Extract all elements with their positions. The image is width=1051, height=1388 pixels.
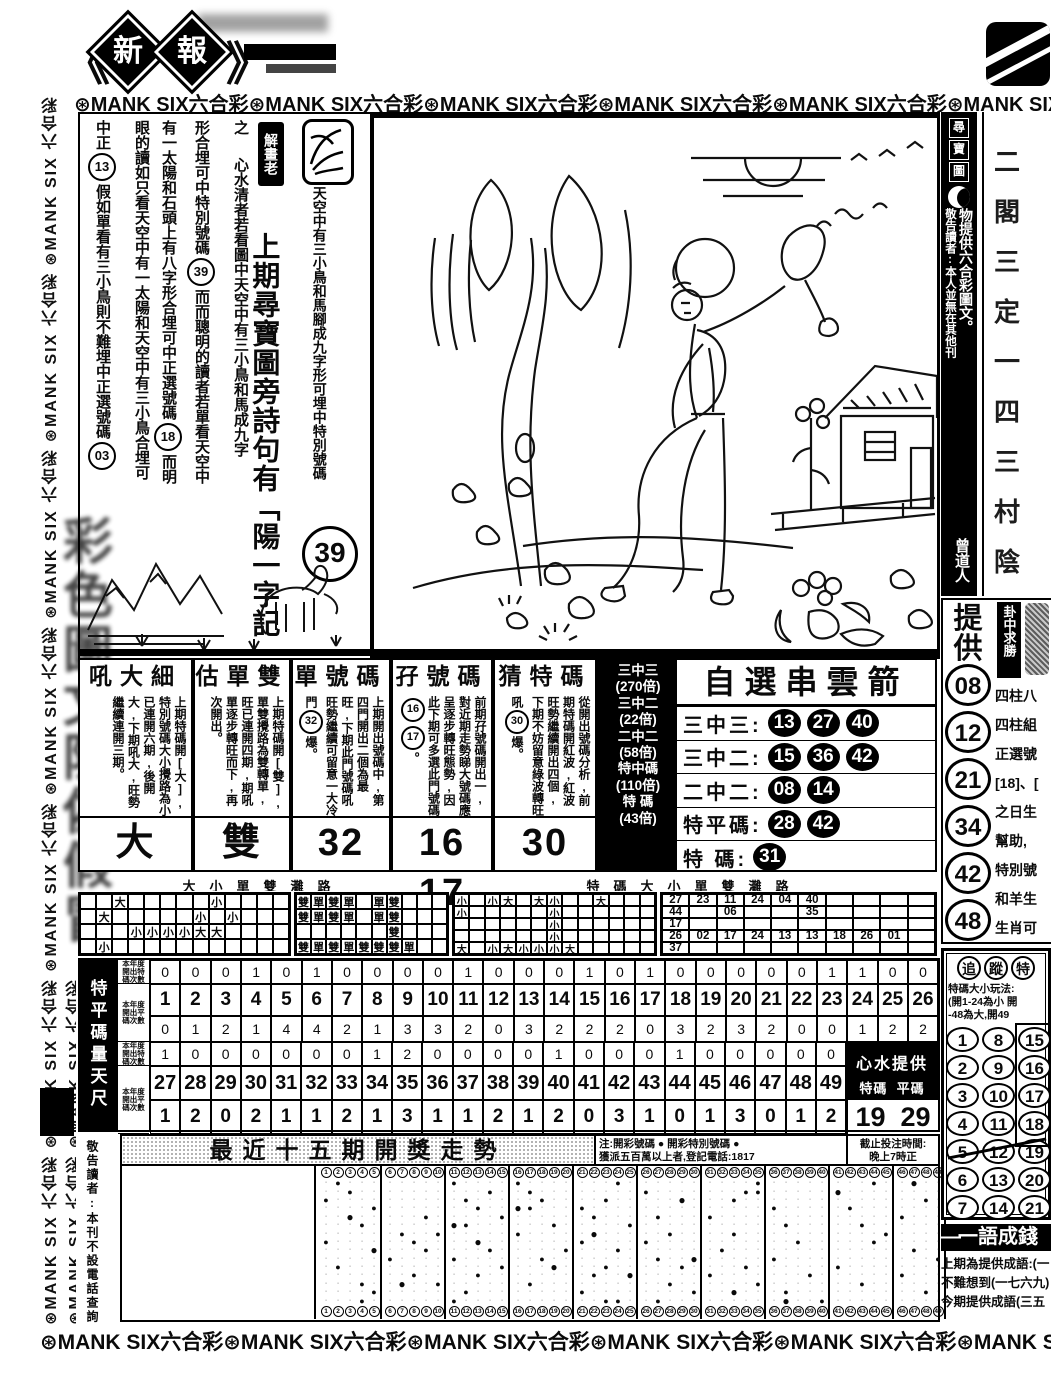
empty-dot: ·	[389, 1281, 391, 1287]
masthead-bracket-right: 》	[226, 28, 272, 94]
empty-dot: ·	[325, 1289, 327, 1295]
empty-dot: ·	[501, 1281, 503, 1287]
column-number: 28	[665, 1167, 676, 1178]
special-number-dot: ●	[370, 1247, 377, 1253]
empty-dot: ·	[413, 1189, 415, 1195]
number-cell: 25	[878, 984, 908, 1016]
road-cell	[257, 939, 273, 954]
empty-dot: ·	[425, 1222, 427, 1228]
drawn-number-dot: ●	[399, 1231, 404, 1237]
odds-line: (22倍)	[599, 712, 677, 728]
empty-dot: ·	[489, 1256, 491, 1262]
empty-dot: ·	[501, 1298, 503, 1304]
empty-dot: ·	[349, 1272, 351, 1278]
ruler-side-label: 特平碼量天尺	[78, 958, 116, 1132]
chase-special-box: 追蹤特 特碼大小玩法:(開1-24為小 開-48為大,開49 181529163…	[941, 948, 1051, 1220]
empty-dot: ·	[325, 1272, 327, 1278]
empty-dot: ·	[453, 1264, 455, 1270]
panel-result: 32	[293, 816, 389, 870]
drawn-number-dot: ●	[411, 1272, 416, 1278]
road-cell: 小	[454, 894, 469, 906]
empty-dot: ·	[785, 1239, 787, 1245]
empty-dot: ·	[937, 1222, 939, 1228]
empty-dot: ·	[821, 1214, 823, 1220]
road-cell: 單	[341, 939, 356, 954]
road-number-cell	[744, 918, 771, 930]
empty-dot: ·	[477, 1256, 479, 1262]
empty-dot: ·	[337, 1239, 339, 1245]
empty-dot: ·	[489, 1231, 491, 1237]
empty-dot: ·	[645, 1247, 647, 1253]
empty-dot: ·	[757, 1222, 759, 1228]
empty-dot: ·	[373, 1189, 375, 1195]
empty-dot: ·	[657, 1205, 659, 1211]
publisher-strip: 尋寶圖 物提供六合彩圖文。 敬告讀者:本人並無在其他刊 曾道人	[941, 112, 977, 596]
number-cell: 36	[422, 1066, 452, 1100]
empty-dot: ·	[389, 1214, 391, 1220]
empty-dot: ·	[849, 1214, 851, 1220]
empty-dot: ·	[745, 1247, 747, 1253]
empty-dot: ·	[437, 1189, 439, 1195]
empty-dot: ·	[605, 1180, 607, 1186]
panel-odd-even: 估單雙 上期特碼開[雙],單雙攪路為雙轉單,旺已連開四期,期吼單逐步轉旺而下,再…	[193, 658, 291, 872]
road-number-cell: 04	[771, 894, 798, 906]
road-number-cell: 24	[744, 930, 771, 942]
empty-dot: ·	[837, 1256, 839, 1262]
column-number: 34	[741, 1306, 752, 1317]
empty-dot: ·	[797, 1272, 799, 1278]
empty-dot: ·	[849, 1189, 851, 1195]
special-count-cell: 1	[665, 1042, 695, 1066]
number-cell: 38	[483, 1066, 513, 1100]
empty-dot: ·	[617, 1214, 619, 1220]
picked-number: 27	[807, 709, 840, 737]
circled-number: 03	[88, 442, 116, 470]
drawn-number-dot: ●	[435, 1231, 440, 1237]
road-cell: 小	[225, 909, 241, 924]
road-cell	[209, 939, 225, 954]
number-cell: 1	[150, 984, 180, 1016]
empty-dot: ·	[785, 1264, 787, 1270]
empty-dot: ·	[837, 1298, 839, 1304]
empty-dot: ·	[325, 1247, 327, 1253]
empty-dot: ·	[821, 1289, 823, 1295]
empty-dot: ·	[517, 1289, 519, 1295]
empty-dot: ·	[489, 1239, 491, 1245]
empty-dot: ·	[413, 1214, 415, 1220]
empty-dot: ·	[361, 1239, 363, 1245]
empty-dot: ·	[721, 1289, 723, 1295]
empty-dot: ·	[413, 1256, 415, 1262]
tip-box: 心水提供 特碼 平碼	[846, 1042, 938, 1100]
empty-dot: ·	[709, 1205, 711, 1211]
empty-dot: ·	[709, 1231, 711, 1237]
empty-dot: ·	[349, 1298, 351, 1304]
road-cell: 單	[311, 939, 326, 954]
special-count-cell: 1	[847, 960, 877, 984]
column-number: 21	[577, 1306, 588, 1317]
empty-dot: ·	[593, 1281, 595, 1287]
empty-dot: ·	[861, 1298, 863, 1304]
road-cell: 雙	[387, 909, 402, 924]
drawn-number-dot: ●	[463, 1289, 468, 1295]
empty-dot: ·	[361, 1189, 363, 1195]
road-cell	[531, 930, 546, 942]
empty-dot: ·	[693, 1239, 695, 1245]
road-cell	[593, 906, 608, 918]
empty-dot: ·	[565, 1231, 567, 1237]
empty-dot: ·	[617, 1264, 619, 1270]
column-number: 10	[433, 1306, 444, 1317]
empty-dot: ·	[593, 1180, 595, 1186]
ping-count-cell: 1	[422, 1100, 452, 1134]
empty-dot: ·	[645, 1231, 647, 1237]
empty-dot: ·	[901, 1205, 903, 1211]
ping-count-cell: 2	[180, 1100, 210, 1134]
empty-dot: ·	[809, 1239, 811, 1245]
empty-dot: ·	[361, 1289, 363, 1295]
empty-dot: ·	[565, 1289, 567, 1295]
road-cell: 雙	[372, 939, 387, 954]
column-number: 23	[601, 1306, 612, 1317]
empty-dot: ·	[937, 1180, 939, 1186]
empty-dot: ·	[773, 1231, 775, 1237]
circled-number: 17	[401, 726, 425, 750]
empty-dot: ·	[437, 1247, 439, 1253]
ping-count-cell: 2	[453, 1016, 483, 1042]
bottom-banner: ⊛MANK SIX六合彩⊛MANK SIX六合彩⊛MANK SIX六合彩⊛MAN…	[40, 1326, 1051, 1354]
road-cell	[241, 894, 257, 909]
drawn-number-dot: ●	[795, 1239, 800, 1245]
road-number-cell	[771, 918, 798, 930]
drawn-number-dot: ●	[371, 1289, 376, 1295]
panel-title: 估單雙	[195, 660, 289, 692]
empty-dot: ·	[413, 1298, 415, 1304]
road-cell	[96, 894, 112, 909]
empty-dot: ·	[797, 1180, 799, 1186]
column-number: 22	[589, 1306, 600, 1317]
empty-dot: ·	[489, 1222, 491, 1228]
empty-dot: ·	[361, 1205, 363, 1211]
empty-dot: ·	[721, 1197, 723, 1203]
road-cell	[609, 906, 624, 918]
empty-dot: ·	[645, 1298, 647, 1304]
road-cell	[80, 939, 96, 954]
column-number: 20	[561, 1167, 572, 1178]
road-cell	[624, 918, 639, 930]
empty-dot: ·	[657, 1197, 659, 1203]
edge-char: 村	[994, 492, 1020, 529]
seal-blob-icon	[1025, 603, 1049, 675]
drawn-number-dot: ●	[603, 1197, 608, 1203]
empty-dot: ·	[553, 1272, 555, 1278]
drawn-number-dot: ●	[899, 1272, 904, 1278]
empty-dot: ·	[593, 1239, 595, 1245]
road-number-cell	[744, 906, 771, 918]
empty-dot: ·	[645, 1197, 647, 1203]
empty-dot: ·	[541, 1239, 543, 1245]
road-cell: 雙	[387, 894, 402, 909]
drawn-number-dot: ●	[451, 1298, 456, 1304]
trend-blank-panel	[122, 1166, 316, 1319]
road-cell: 單	[341, 909, 356, 924]
column-number: 32	[717, 1167, 728, 1178]
odds-line: 二中二	[599, 729, 677, 745]
circled-number: 39	[187, 258, 215, 286]
panel-body: 上期特碼開[大],特別號碼大小攪路為小已連開六期,後開大,下期吼大,旺勢繼續連開…	[84, 696, 187, 816]
special-count-cell: 0	[787, 960, 817, 984]
column-number: 3	[345, 1167, 356, 1178]
empty-dot: ·	[565, 1239, 567, 1245]
chase-number: 20	[1018, 1167, 1051, 1192]
empty-dot: ·	[581, 1222, 583, 1228]
road-number-cell	[717, 942, 744, 954]
empty-dot: ·	[785, 1189, 787, 1195]
empty-dot: ·	[361, 1272, 363, 1278]
drawn-number-dot: ●	[691, 1289, 696, 1295]
road-cell	[562, 906, 577, 918]
empty-dot: ·	[925, 1298, 927, 1304]
odd-even-road-grid: 雙單雙單單雙雙單雙單單雙雙雙單雙單雙雙雙單	[294, 892, 449, 956]
empty-dot: ·	[757, 1205, 759, 1211]
self-pick-row: 三中二:153642	[677, 741, 935, 775]
ping-count-cell: 2	[878, 1016, 908, 1042]
empty-dot: ·	[501, 1180, 503, 1186]
empty-dot: ·	[821, 1272, 823, 1278]
empty-dot: ·	[821, 1231, 823, 1237]
road-cell	[341, 924, 356, 939]
empty-dot: ·	[453, 1189, 455, 1195]
empty-dot: ·	[873, 1214, 875, 1220]
road-cell: 雙	[387, 924, 402, 939]
publisher-line2: 敬告讀者:本人並無在其他刊	[942, 208, 958, 568]
empty-dot: ·	[885, 1298, 887, 1304]
empty-dot: ·	[837, 1239, 839, 1245]
empty-dot: ·	[465, 1298, 467, 1304]
empty-dot: ·	[477, 1180, 479, 1186]
special-count-cell: 0	[726, 960, 756, 984]
drawn-number-dot: ●	[487, 1189, 492, 1195]
edge-char: 四	[994, 392, 1020, 429]
road-number-cell: 17	[662, 918, 689, 930]
empty-dot: ·	[681, 1281, 683, 1287]
empty-dot: ·	[693, 1231, 695, 1237]
column-number: 37	[781, 1167, 792, 1178]
empty-dot: ·	[645, 1222, 647, 1228]
drawn-number-dot: ●	[643, 1239, 648, 1245]
empty-dot: ·	[581, 1264, 583, 1270]
empty-dot: ·	[325, 1256, 327, 1262]
empty-dot: ·	[861, 1180, 863, 1186]
empty-dot: ·	[337, 1189, 339, 1195]
empty-dot: ·	[349, 1264, 351, 1270]
road-cell	[562, 918, 577, 930]
empty-dot: ·	[733, 1272, 735, 1278]
picked-number: 40	[846, 709, 879, 737]
column-number: 10	[433, 1167, 444, 1178]
number-cell: 33	[332, 1066, 362, 1100]
road-cell: 大	[454, 942, 469, 954]
empty-dot: ·	[925, 1247, 927, 1253]
special-number-dot: ●	[678, 1197, 685, 1203]
empty-dot: ·	[629, 1256, 631, 1262]
empty-dot: ·	[325, 1222, 327, 1228]
side-note-line: 之日生	[995, 802, 1051, 822]
empty-dot: ·	[901, 1264, 903, 1270]
empty-dot: ·	[837, 1247, 839, 1253]
article-column: 之心水清者若看圖中天空中有三小鳥和馬成九字	[216, 120, 248, 520]
road-number-cell	[853, 918, 880, 930]
trend-title: 最近十五期開獎走勢	[122, 1136, 596, 1164]
drawn-number-dot: ●	[731, 1197, 736, 1203]
empty-dot: ·	[937, 1214, 939, 1220]
ruler-row-label: 本年度開出特碼次數	[118, 960, 149, 984]
empty-dot: ·	[425, 1289, 427, 1295]
empty-dot: ·	[529, 1256, 531, 1262]
empty-dot: ·	[681, 1214, 683, 1220]
number-cell: 3	[211, 984, 241, 1016]
empty-dot: ·	[861, 1264, 863, 1270]
empty-dot: ·	[489, 1281, 491, 1287]
column-number: 19	[549, 1306, 560, 1317]
panel-body: 從開出號碼分析,前期特碼開紅波,紅波旺勢繼續開出四個,下期不妨留意綠波轉旺吼30…	[499, 696, 591, 816]
panel-title: 吼大細	[80, 660, 191, 692]
empty-dot: ·	[925, 1256, 927, 1262]
road-cell	[96, 924, 112, 939]
empty-dot: ·	[849, 1239, 851, 1245]
drawn-number-dot: ●	[871, 1239, 876, 1245]
empty-dot: ·	[913, 1298, 915, 1304]
empty-dot: ·	[773, 1180, 775, 1186]
empty-dot: ·	[617, 1222, 619, 1228]
number-cell: 18	[665, 984, 695, 1016]
empty-dot: ·	[553, 1205, 555, 1211]
empty-dot: ·	[885, 1289, 887, 1295]
empty-dot: ·	[605, 1247, 607, 1253]
empty-dot: ·	[645, 1256, 647, 1262]
empty-dot: ·	[541, 1231, 543, 1237]
road-cell: 小	[485, 894, 500, 906]
empty-dot: ·	[437, 1180, 439, 1186]
special-count-cell: 0	[211, 960, 241, 984]
boxed-char: 尋	[949, 118, 969, 138]
road-cell: 小	[209, 894, 225, 909]
ping-count-cell: 2	[574, 1016, 604, 1042]
provided-number: 34	[945, 805, 991, 847]
tip-ping-value: 29	[900, 1102, 930, 1133]
drawn-number-dot: ●	[859, 1281, 864, 1287]
empty-dot: ·	[617, 1272, 619, 1278]
empty-dot: ·	[809, 1247, 811, 1253]
road-cell	[112, 909, 128, 924]
special-count-cell: 0	[755, 1042, 785, 1066]
empty-dot: ·	[437, 1197, 439, 1203]
number-cell: 41	[574, 1066, 604, 1100]
empty-dot: ·	[425, 1239, 427, 1245]
empty-dot: ·	[553, 1189, 555, 1195]
drawn-number-dot: ●	[579, 1205, 584, 1211]
ping-count-cell: 0	[665, 1100, 695, 1134]
number-cell: 12	[483, 984, 513, 1016]
empty-dot: ·	[529, 1272, 531, 1278]
empty-dot: ·	[541, 1222, 543, 1228]
special-count-cell: 1	[241, 960, 271, 984]
empty-dot: ·	[809, 1298, 811, 1304]
empty-dot: ·	[913, 1239, 915, 1245]
empty-dot: ·	[837, 1214, 839, 1220]
empty-dot: ·	[901, 1247, 903, 1253]
empty-dot: ·	[581, 1298, 583, 1304]
empty-dot: ·	[821, 1197, 823, 1203]
empty-dot: ·	[937, 1205, 939, 1211]
empty-dot: ·	[885, 1197, 887, 1203]
column-number: 42	[845, 1167, 856, 1178]
road-cell: 單	[372, 909, 387, 924]
road-number-cell	[853, 894, 880, 906]
empty-dot: ·	[657, 1222, 659, 1228]
empty-dot: ·	[837, 1281, 839, 1287]
empty-dot: ·	[373, 1197, 375, 1203]
empty-dot: ·	[773, 1289, 775, 1295]
road-cell	[241, 924, 257, 939]
edge-char: 二	[994, 142, 1020, 179]
drawn-number-dot: ●	[451, 1180, 456, 1186]
empty-dot: ·	[709, 1189, 711, 1195]
road-cell: 雙	[326, 909, 341, 924]
road-cell: 小	[547, 930, 562, 942]
road-cell: 小	[516, 942, 531, 954]
road-cell	[326, 924, 341, 939]
road-cell	[609, 942, 624, 954]
special-number-dot: ●	[398, 1281, 405, 1287]
number-cell: 23	[817, 984, 847, 1016]
empty-dot: ·	[657, 1189, 659, 1195]
empty-dot: ·	[785, 1247, 787, 1253]
empty-dot: ·	[797, 1247, 799, 1253]
empty-dot: ·	[873, 1289, 875, 1295]
column-number: 26	[641, 1306, 652, 1317]
number-cell: 26	[908, 984, 938, 1016]
side-note-line: 特別號	[995, 860, 1051, 880]
side-note-line: 正選號	[995, 744, 1051, 764]
empty-dot: ·	[529, 1298, 531, 1304]
ruler-row-label: 本年度開出特碼次數	[118, 1042, 149, 1066]
road-number-cell: 35	[798, 906, 825, 918]
road-cell	[432, 909, 447, 924]
odds-line: 三中三	[599, 663, 677, 679]
road-cell	[516, 918, 531, 930]
special-number-dot: ●	[590, 1231, 597, 1237]
number-cell: 35	[392, 1066, 422, 1100]
ping-count-cell: 1	[180, 1016, 210, 1042]
empty-dot: ·	[709, 1247, 711, 1253]
empty-dot: ·	[773, 1272, 775, 1278]
road-cell	[578, 930, 593, 942]
empty-dot: ·	[349, 1281, 351, 1287]
picked-number: 28	[768, 810, 801, 838]
number-cell: 46	[725, 1066, 755, 1100]
ping-count-cell: 1	[513, 1100, 543, 1134]
empty-dot: ·	[785, 1197, 787, 1203]
empty-dot: ·	[605, 1239, 607, 1245]
empty-dot: ·	[501, 1239, 503, 1245]
road-number-cell	[771, 942, 798, 954]
road-cell	[176, 894, 192, 909]
empty-dot: ·	[681, 1272, 683, 1278]
column-number: 45	[881, 1306, 892, 1317]
empty-dot: ·	[401, 1180, 403, 1186]
empty-dot: ·	[873, 1272, 875, 1278]
